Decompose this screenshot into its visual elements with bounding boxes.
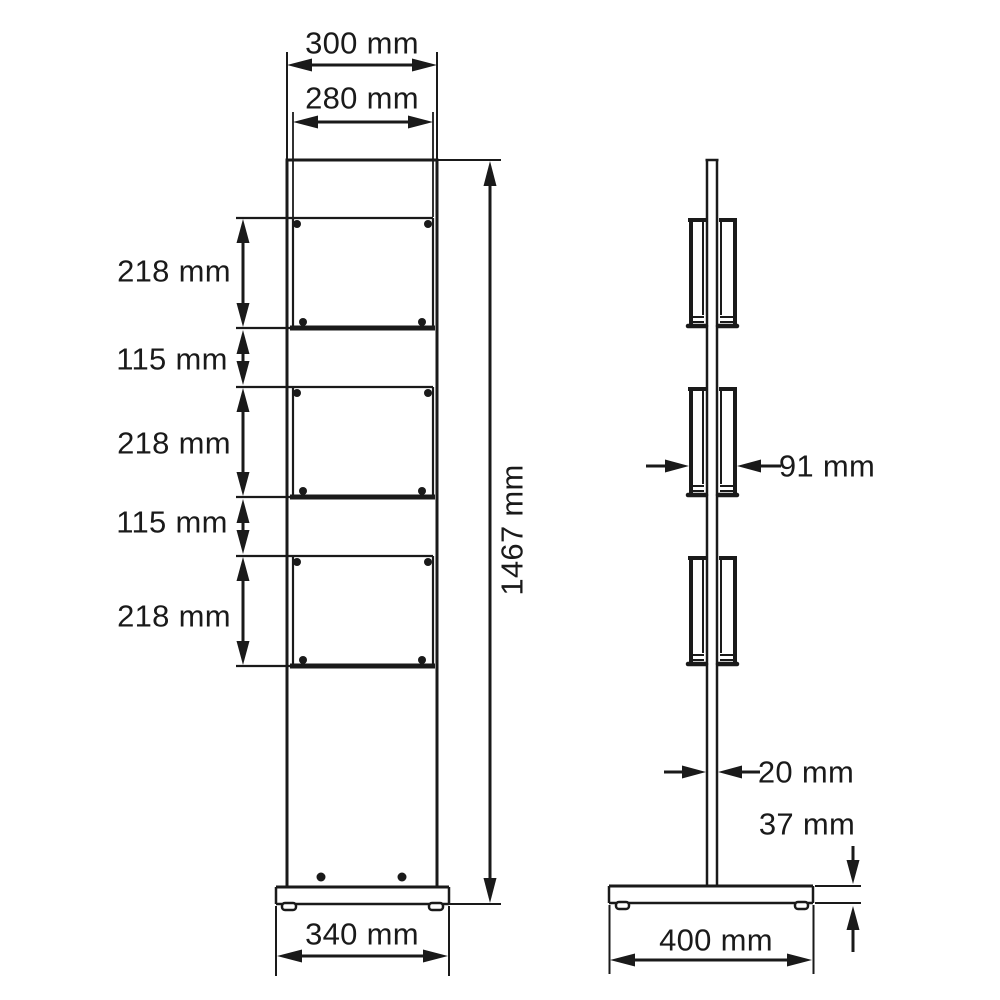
arrowhead-down-icon xyxy=(237,472,250,496)
dim-label-pocket-depth: 91 mm xyxy=(779,451,875,482)
arrowhead-up-icon xyxy=(237,219,250,243)
arrowhead-up-icon xyxy=(237,499,250,523)
arrowhead-up-icon xyxy=(237,330,250,354)
screw-dot xyxy=(293,389,301,397)
arrowhead-down-icon xyxy=(847,860,860,884)
side-base xyxy=(609,886,813,909)
arrowhead-down-icon xyxy=(237,361,250,385)
arrowhead-left-icon xyxy=(610,954,635,967)
side-brochure-pocket-3 xyxy=(688,556,737,666)
screw-dot xyxy=(293,220,301,228)
dim-label-pocket-height-2: 218 mm xyxy=(117,428,231,459)
screw-dot xyxy=(398,873,407,882)
screw-dot xyxy=(424,558,432,566)
screw-dot xyxy=(418,487,426,495)
screw-dot xyxy=(418,318,426,326)
screw-dot xyxy=(317,873,326,882)
side-dim-37mm xyxy=(815,846,861,952)
arrowhead-right-icon xyxy=(665,460,689,473)
arrowhead-left-icon xyxy=(718,766,742,779)
arrowhead-right-icon xyxy=(408,116,433,129)
arrowhead-right-icon xyxy=(423,950,448,963)
screw-dot xyxy=(418,656,426,664)
screw-dot xyxy=(424,220,432,228)
front-dim-280mm xyxy=(293,112,433,217)
arrowhead-up-icon xyxy=(484,161,497,186)
arrowhead-up-icon xyxy=(847,906,860,930)
screw-dot xyxy=(299,318,307,326)
screw-dot xyxy=(424,389,432,397)
dim-label-gap-1: 115 mm xyxy=(116,344,227,375)
dim-label-base-width: 340 mm xyxy=(305,919,419,950)
arrowhead-down-icon xyxy=(237,530,250,554)
side-dim-20mm xyxy=(664,766,760,779)
base-foot xyxy=(429,903,443,910)
technical-drawing: 300 mm 280 mm 218 mm 115 mm 218 mm 115 m… xyxy=(0,0,1000,1000)
dim-label-pocket-height-1: 218 mm xyxy=(117,256,231,287)
arrowhead-right-icon xyxy=(682,766,706,779)
front-brochure-pocket-2 xyxy=(236,387,435,497)
arrowhead-left-icon xyxy=(737,460,761,473)
dim-label-pole-thickness: 20 mm xyxy=(758,757,854,788)
dim-label-base-depth: 400 mm xyxy=(659,925,773,956)
screw-dot xyxy=(293,558,301,566)
arrowhead-down-icon xyxy=(237,303,250,327)
base-foot xyxy=(616,902,629,909)
side-brochure-pocket-1 xyxy=(688,218,737,328)
screw-dot xyxy=(299,656,307,664)
arrowhead-down-icon xyxy=(237,641,250,665)
front-panel xyxy=(286,160,502,886)
front-dim-218mm-2 xyxy=(237,388,250,496)
dim-label-pocket-width: 280 mm xyxy=(305,83,419,114)
side-view xyxy=(609,160,861,974)
base-foot xyxy=(282,903,296,910)
arrowhead-right-icon xyxy=(787,954,812,967)
front-view xyxy=(236,52,501,976)
side-brochure-pocket-2 xyxy=(688,387,737,497)
dim-label-pocket-height-3: 218 mm xyxy=(117,601,231,632)
arrowhead-up-icon xyxy=(237,557,250,581)
front-dim-218mm-3 xyxy=(237,557,250,665)
screw-dot xyxy=(299,487,307,495)
front-brochure-pocket-1 xyxy=(236,218,435,328)
dim-label-total-height: 1467 mm xyxy=(497,464,528,595)
side-pole xyxy=(706,160,719,886)
front-dim-115mm-2 xyxy=(237,499,250,554)
base-foot xyxy=(795,902,808,909)
dim-label-gap-2: 115 mm xyxy=(116,507,227,538)
arrowhead-up-icon xyxy=(237,388,250,412)
arrowhead-down-icon xyxy=(484,878,497,903)
front-dim-218mm-1 xyxy=(237,219,250,327)
arrowhead-left-icon xyxy=(277,950,302,963)
dim-label-base-height: 37 mm xyxy=(759,809,855,840)
dim-label-top-width: 300 mm xyxy=(305,28,419,59)
arrowhead-left-icon xyxy=(293,116,318,129)
front-dim-115mm-1 xyxy=(237,330,250,385)
front-brochure-pocket-3 xyxy=(236,556,435,666)
front-base xyxy=(276,873,501,911)
side-dim-91mm xyxy=(646,460,781,473)
